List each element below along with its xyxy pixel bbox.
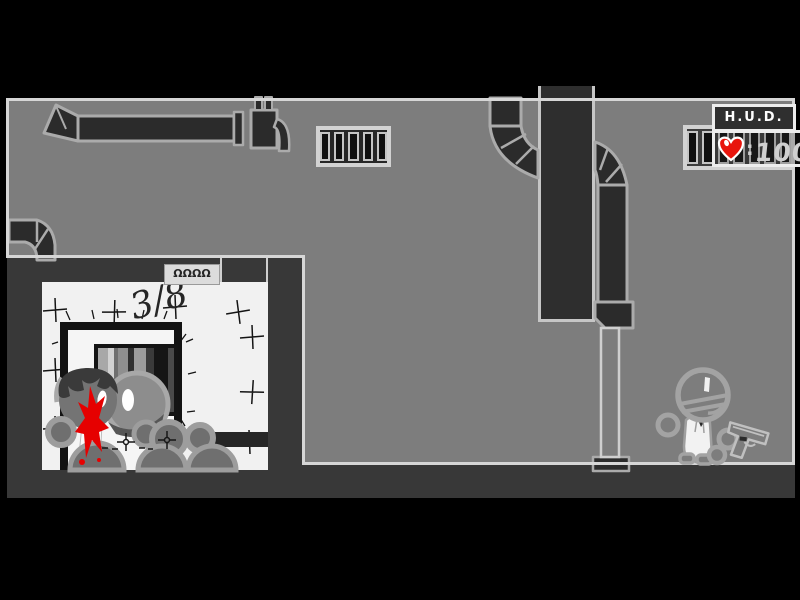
vent-slat xyxy=(334,132,344,161)
air-duct-left xyxy=(38,95,303,175)
air-duct-right-assembly xyxy=(470,86,645,476)
duct-vertical xyxy=(490,98,521,126)
game-screen: { "hud": { "title": "H.U.D.", "health": … xyxy=(0,0,800,600)
duct-elbow-right xyxy=(595,142,627,185)
arm-ring xyxy=(658,415,678,435)
room-column-line xyxy=(302,255,305,465)
hud-title: H.U.D. xyxy=(712,104,796,132)
left-wall-line xyxy=(6,98,9,258)
heart-icon xyxy=(717,136,745,162)
vent-slat xyxy=(377,132,387,161)
vent-slat xyxy=(363,132,373,161)
duct-run xyxy=(78,116,234,141)
white-room: 3/8 xyxy=(42,282,268,470)
wall-plaque: ΩΩΩΩ xyxy=(164,264,220,285)
vent-slat xyxy=(320,132,330,161)
guard-character xyxy=(650,358,785,470)
wall-vent xyxy=(316,126,391,167)
hud-panel: H.U.D. : 100 xyxy=(712,104,800,167)
ledge-divider xyxy=(266,258,268,282)
ledge-top-line xyxy=(7,255,305,258)
wall-pipe xyxy=(601,328,619,457)
game-stage[interactable]: 3/8 xyxy=(0,0,800,600)
duct-elbow-left xyxy=(44,105,78,141)
ledge-divider xyxy=(220,258,222,282)
health-separator: : xyxy=(746,138,754,160)
body-domes xyxy=(70,443,236,470)
duct-vertical-right xyxy=(598,185,627,302)
ceiling-line xyxy=(7,98,795,101)
hud-health-row: : 100 xyxy=(712,130,800,167)
body-pile xyxy=(42,282,268,470)
vent-slat xyxy=(348,132,358,161)
health-value: 100 xyxy=(753,138,800,167)
pipe-bracket xyxy=(595,302,633,328)
duct-elbow-down xyxy=(490,126,538,178)
helmet-spike xyxy=(704,377,710,392)
